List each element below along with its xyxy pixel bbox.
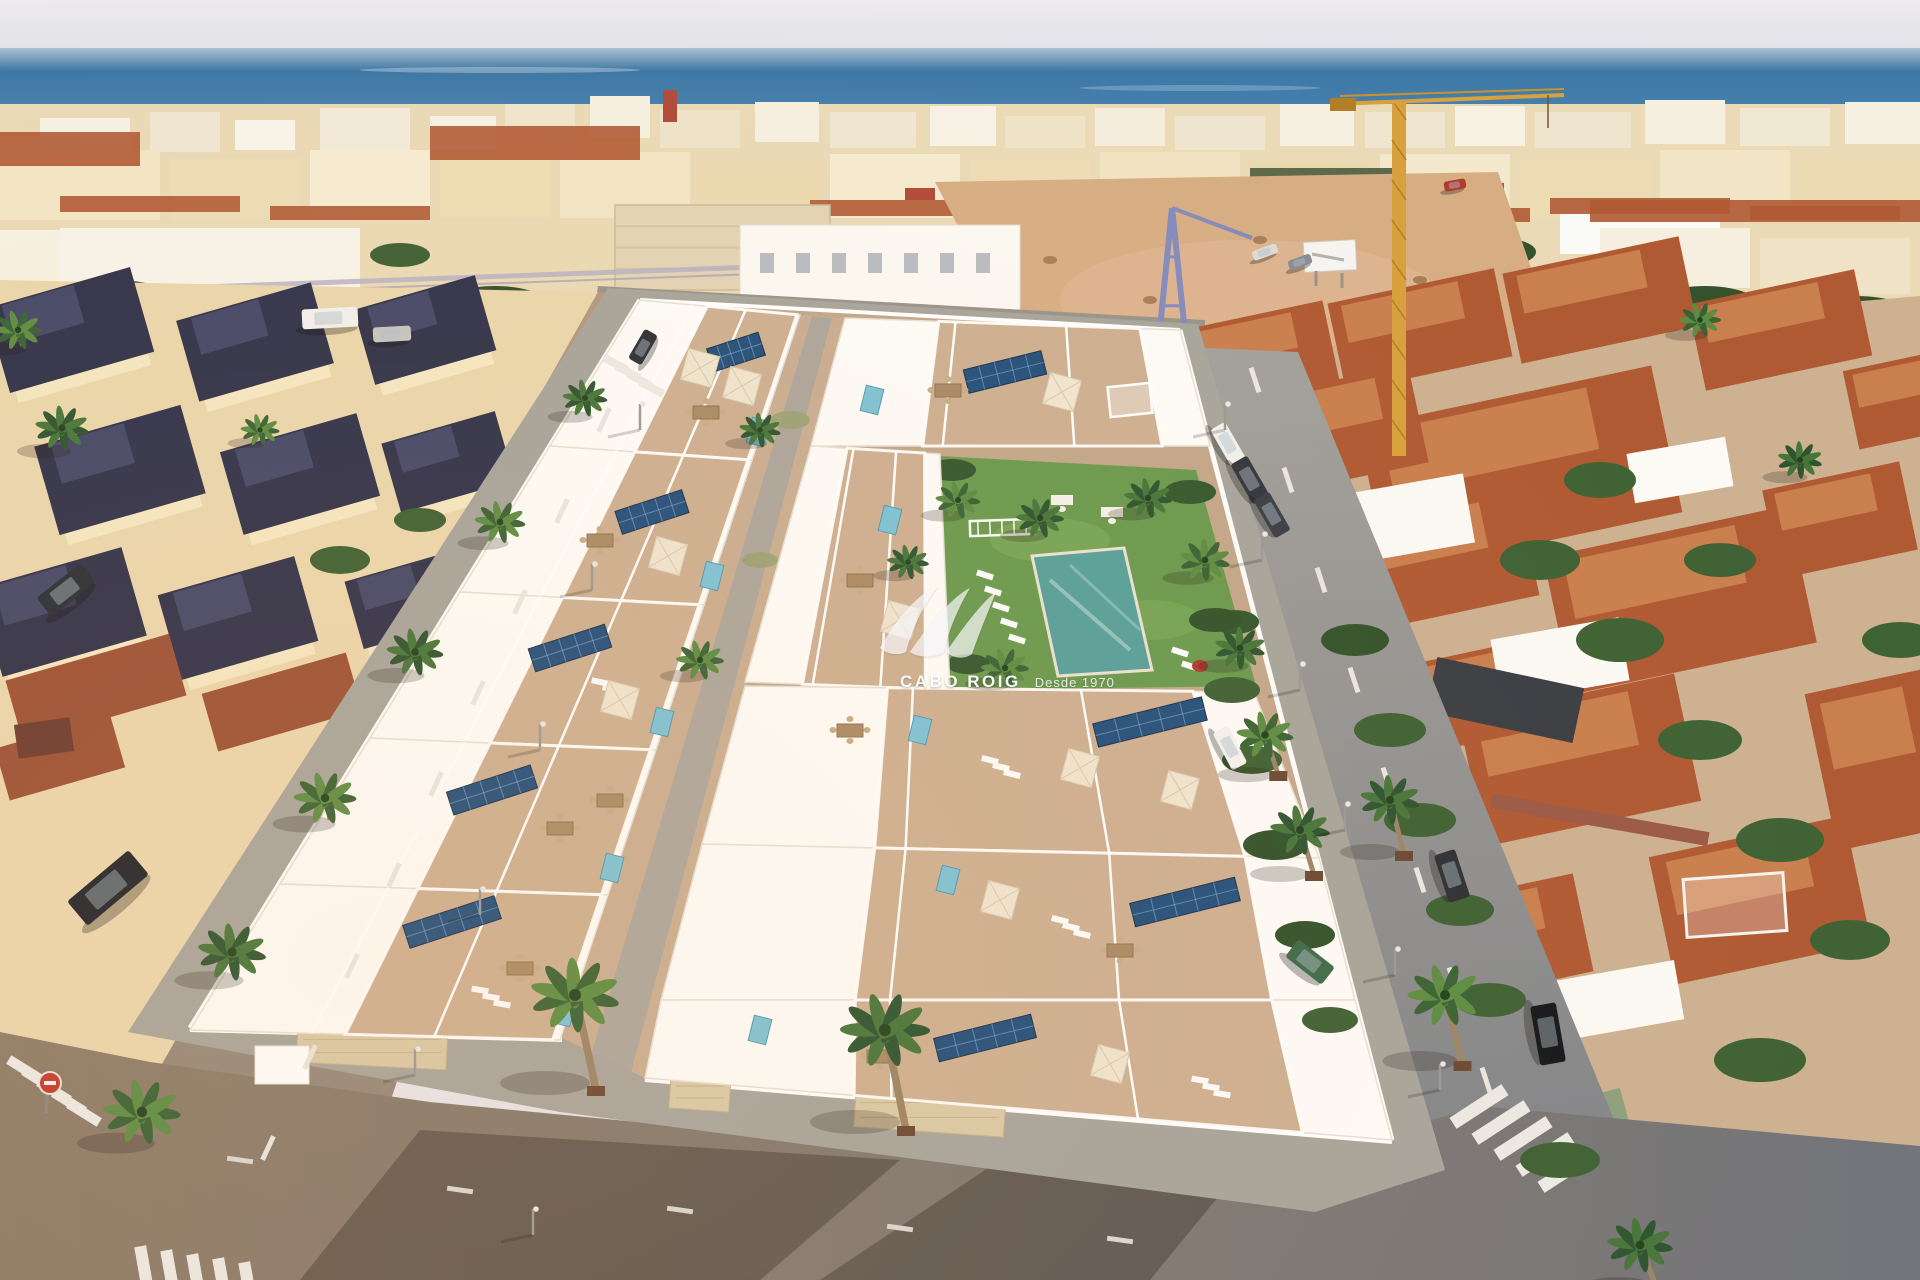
scene-svg xyxy=(0,0,1920,1280)
aerial-development-render: CABO ROIG Desde 1970 xyxy=(0,0,1920,1280)
warm-light-grade xyxy=(0,0,1920,1280)
